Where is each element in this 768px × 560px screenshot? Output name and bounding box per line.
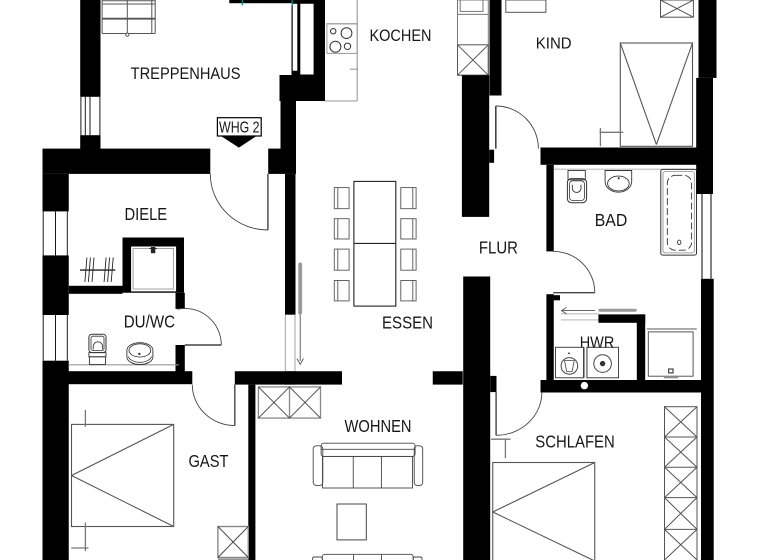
svg-text:BAD: BAD [595, 210, 628, 230]
svg-text:KOCHEN: KOCHEN [370, 26, 432, 45]
svg-text:GAST: GAST [189, 451, 229, 471]
svg-text:ESSEN: ESSEN [382, 312, 433, 332]
svg-text:DIELE: DIELE [124, 204, 167, 224]
svg-text:SCHLAFEN: SCHLAFEN [535, 432, 615, 452]
svg-text:TREPPENHAUS: TREPPENHAUS [131, 64, 241, 83]
svg-text:WOHNEN: WOHNEN [345, 416, 412, 436]
svg-text:DU/WC: DU/WC [124, 311, 175, 331]
svg-text:WHG 2: WHG 2 [219, 120, 260, 137]
svg-text:KIND: KIND [536, 35, 572, 52]
svg-text:FLUR: FLUR [479, 238, 518, 258]
